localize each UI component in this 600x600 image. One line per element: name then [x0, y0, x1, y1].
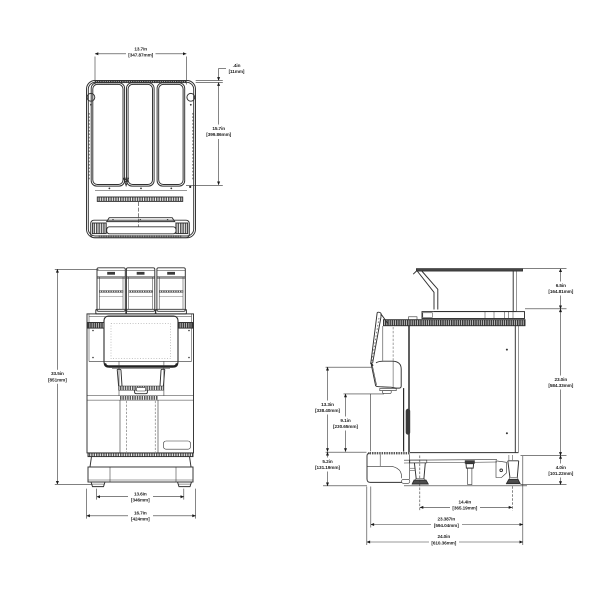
svg-text:16.7in: 16.7in: [134, 510, 147, 515]
svg-text:14.4in: 14.4in: [458, 499, 471, 504]
svg-text:[346mm]: [346mm]: [131, 497, 150, 502]
svg-text:13.3in: 13.3in: [321, 402, 334, 407]
svg-text:23.0in: 23.0in: [554, 377, 567, 382]
svg-text:[338.40mm]: [338.40mm]: [315, 408, 340, 413]
svg-text:[399.86mm]: [399.86mm]: [206, 132, 231, 137]
svg-text:13.6in: 13.6in: [134, 491, 147, 496]
svg-text:[594.04mm]: [594.04mm]: [434, 523, 459, 528]
svg-text:33.5in: 33.5in: [51, 371, 64, 376]
svg-text:[610.36mm]: [610.36mm]: [431, 540, 456, 545]
svg-text:23.387in: 23.387in: [437, 517, 455, 522]
svg-text:13.7in: 13.7in: [134, 47, 147, 52]
svg-text:[131.19mm]: [131.19mm]: [315, 465, 340, 470]
svg-text:[424mm]: [424mm]: [131, 516, 150, 521]
svg-text:4.0in: 4.0in: [556, 465, 566, 470]
svg-text:5.2in: 5.2in: [322, 459, 332, 464]
svg-text:[230.65mm]: [230.65mm]: [333, 424, 358, 429]
svg-text:[164.81mm]: [164.81mm]: [548, 289, 573, 294]
svg-text:[584.33mm]: [584.33mm]: [548, 383, 573, 388]
svg-text:[101.22mm]: [101.22mm]: [548, 471, 573, 476]
svg-text:6.5in: 6.5in: [556, 283, 566, 288]
svg-text:.4in: .4in: [233, 63, 241, 68]
svg-text:9.1in: 9.1in: [340, 418, 350, 423]
svg-text:15.7in: 15.7in: [212, 126, 225, 131]
svg-text:[365.19mm]: [365.19mm]: [452, 506, 477, 511]
svg-text:[347.87mm]: [347.87mm]: [128, 52, 153, 57]
svg-text:[11mm]: [11mm]: [229, 69, 245, 74]
svg-text:[851mm]: [851mm]: [48, 377, 67, 382]
svg-text:24.0in: 24.0in: [437, 534, 450, 539]
